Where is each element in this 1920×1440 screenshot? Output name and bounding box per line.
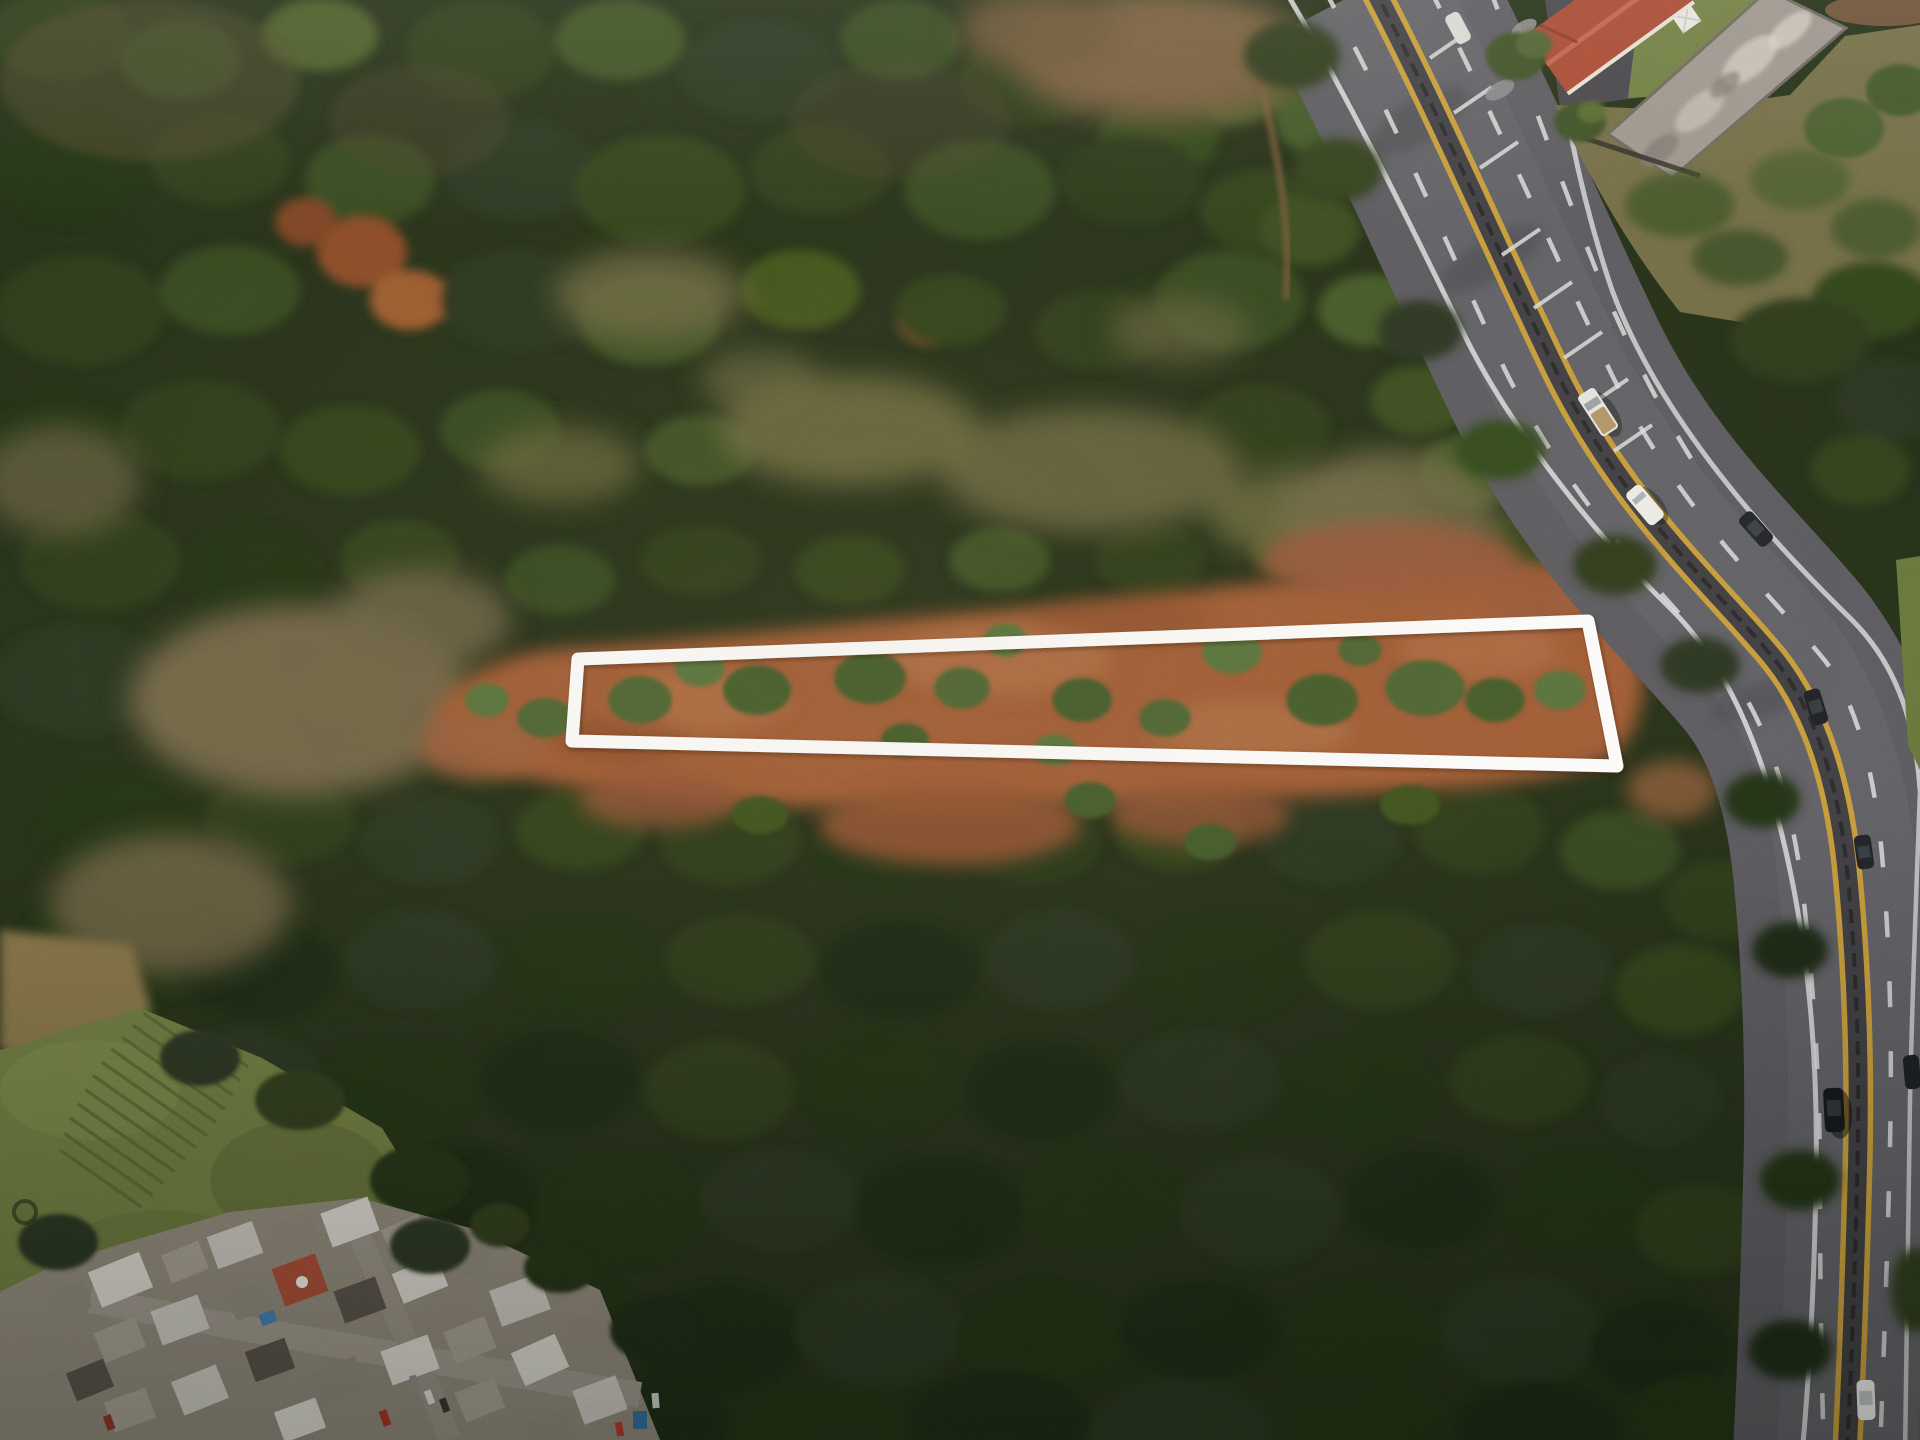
film-grain — [0, 0, 1920, 1440]
aerial-photo — [0, 0, 1920, 1440]
aerial-photo-stage — [0, 0, 1920, 1440]
